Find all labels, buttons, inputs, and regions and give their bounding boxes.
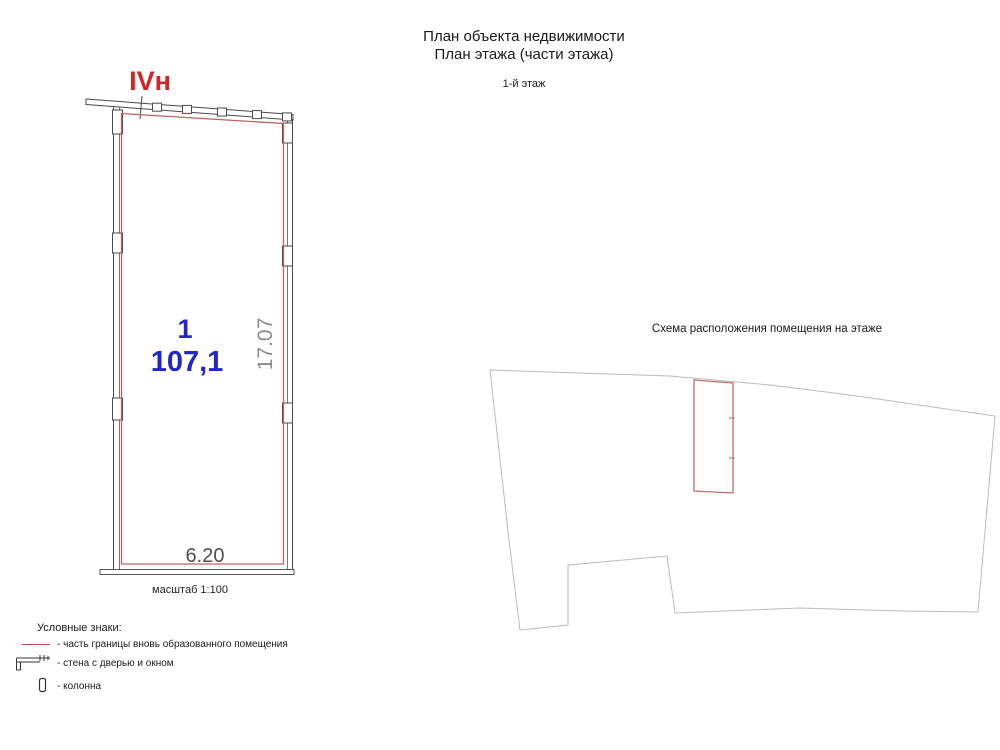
bottom-wall <box>100 570 294 575</box>
floor-plan: IVн 1 107,1 17.07 6.20 <box>86 66 294 575</box>
premises-location-highlight <box>694 380 733 493</box>
column-icon <box>38 677 48 693</box>
horizontal-dimension: 6.20 <box>186 545 225 567</box>
vertical-dimension: 17.07 <box>254 318 277 371</box>
legend-heading: Условные знаки: <box>37 622 122 634</box>
window-marker <box>153 103 162 111</box>
legend-item-column: - колонна <box>57 681 101 692</box>
red-boundary-line-icon <box>22 644 50 645</box>
window-marker <box>283 113 292 121</box>
window-marker <box>183 105 192 113</box>
premises-label: IVн <box>129 66 171 96</box>
room-area: 107,1 <box>151 346 224 378</box>
legend-item-wall: - стена с дверью и окном <box>57 658 174 669</box>
location-schema <box>490 370 995 630</box>
window-marker <box>253 111 262 119</box>
room-number: 1 <box>177 314 192 344</box>
document-page: План объекта недвижимости План этажа (ча… <box>0 0 1000 750</box>
floor-outline <box>490 370 995 630</box>
legend-item-boundary: - часть границы вновь образованного поме… <box>57 639 288 650</box>
wall-with-door-window-icon <box>15 653 53 673</box>
window-marker <box>218 108 227 116</box>
floor-plan-drawing: IVн 1 107,1 17.07 6.20 <box>0 0 1000 750</box>
